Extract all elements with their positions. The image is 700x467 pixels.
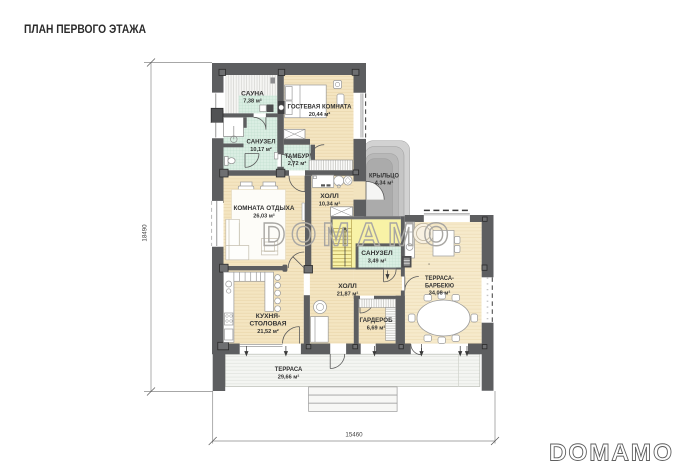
- svg-text:ХОЛЛ: ХОЛЛ: [320, 193, 339, 200]
- svg-text:ГОСТЕВАЯ КОМНАТА: ГОСТЕВАЯ КОМНАТА: [288, 104, 352, 111]
- svg-text:СТОЛОВАЯ: СТОЛОВАЯ: [250, 321, 287, 328]
- svg-text:18490: 18490: [142, 224, 149, 242]
- svg-text:ХОЛЛ: ХОЛЛ: [338, 283, 357, 290]
- svg-text:ТЕРРАСА-: ТЕРРАСА-: [425, 275, 454, 282]
- svg-text:10,34 м²: 10,34 м²: [319, 201, 341, 208]
- svg-text:КУХНЯ-: КУХНЯ-: [256, 313, 280, 320]
- svg-text:ГАРДЕРОБ: ГАРДЕРОБ: [360, 317, 393, 324]
- svg-text:7,38 м²: 7,38 м²: [243, 98, 262, 105]
- svg-text:САНУЗЕЛ: САНУЗЕЛ: [247, 139, 276, 146]
- svg-text:ПЛАН ПЕРВОГО ЭТАЖА: ПЛАН ПЕРВОГО ЭТАЖА: [24, 24, 146, 36]
- svg-text:34,08 м²: 34,08 м²: [429, 290, 451, 297]
- svg-text:2,72 м²: 2,72 м²: [288, 160, 307, 167]
- svg-text:21,87 м²: 21,87 м²: [337, 291, 359, 298]
- svg-text:20,44 м²: 20,44 м²: [309, 111, 331, 118]
- svg-text:ТЕРРАСА: ТЕРРАСА: [275, 366, 303, 373]
- svg-text:21,52 м²: 21,52 м²: [257, 328, 279, 335]
- svg-text:КОМНАТА ОТДЫХА: КОМНАТА ОТДЫХА: [234, 205, 295, 212]
- svg-text:15460: 15460: [345, 432, 363, 439]
- svg-text:DOMAMO: DOMAMO: [549, 440, 674, 467]
- svg-text:29,66 м²: 29,66 м²: [278, 374, 300, 381]
- svg-text:КРЫЛЬЦО: КРЫЛЬЦО: [369, 173, 399, 180]
- svg-text:6,69 м²: 6,69 м²: [367, 325, 386, 332]
- svg-text:САУНА: САУНА: [241, 91, 264, 98]
- svg-text:ТАМБУР: ТАМБУР: [285, 153, 310, 160]
- svg-text:3,49 м²: 3,49 м²: [368, 258, 387, 265]
- svg-text:4,34 м²: 4,34 м²: [375, 180, 394, 187]
- svg-text:10,17 м²: 10,17 м²: [250, 146, 272, 153]
- svg-text:БАРБЕКЮ: БАРБЕКЮ: [425, 283, 454, 290]
